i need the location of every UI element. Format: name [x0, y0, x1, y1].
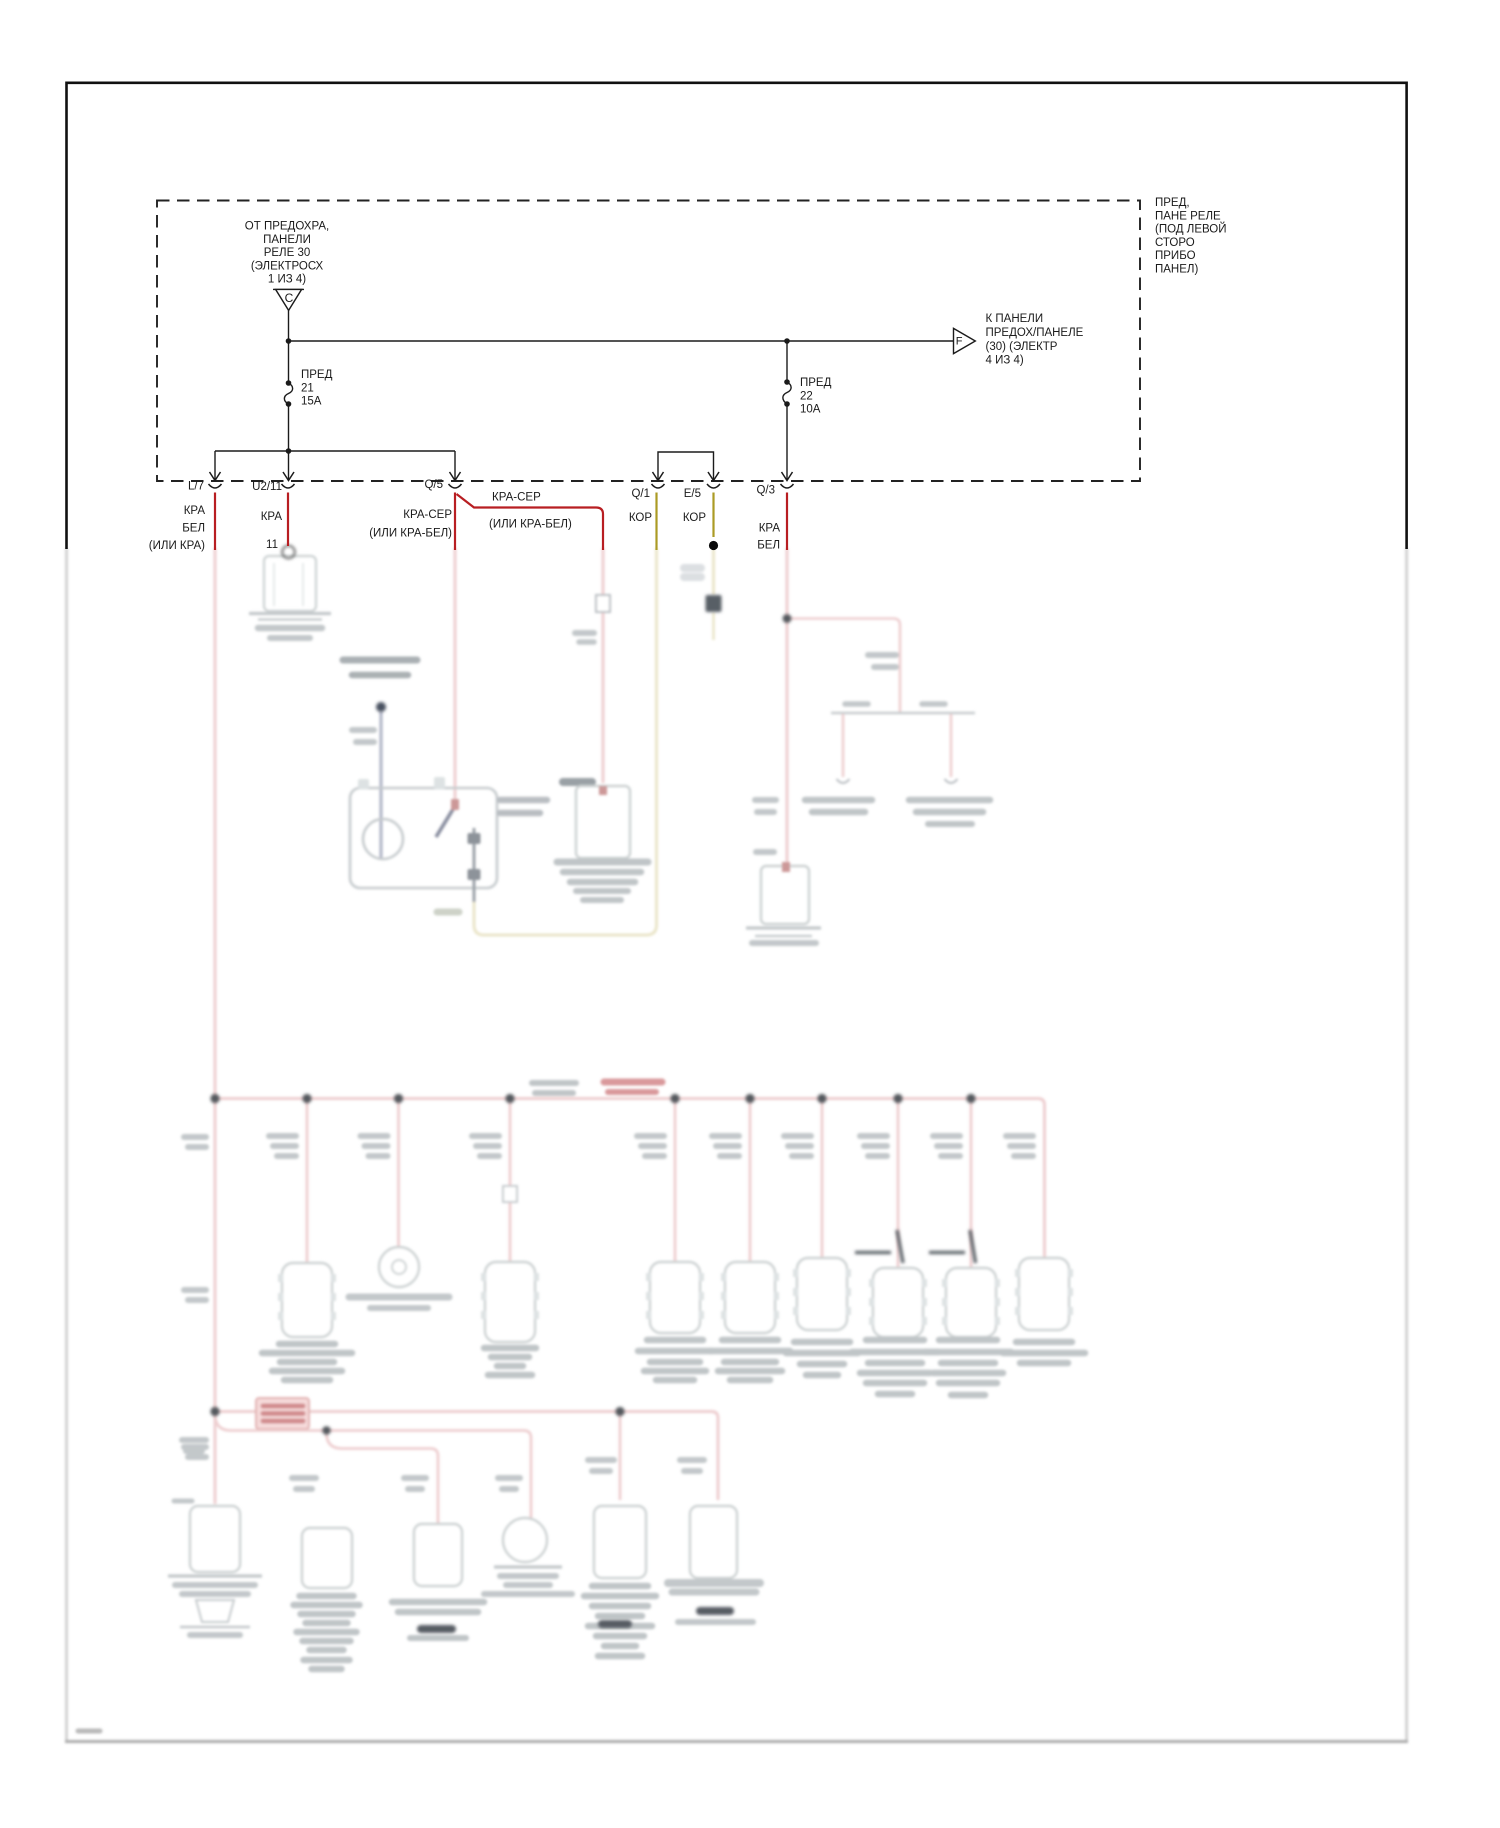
svg-text:(ИЛИ КРА-БЕЛ): (ИЛИ КРА-БЕЛ)	[489, 519, 572, 531]
svg-text:ПАНЕ РЕЛЕ: ПАНЕ РЕЛЕ	[1155, 210, 1221, 222]
svg-text:E/5: E/5	[684, 488, 701, 500]
svg-text:11: 11	[266, 539, 278, 551]
svg-text:(ЭЛЕКТРОСХ: (ЭЛЕКТРОСХ	[251, 260, 324, 272]
svg-text:КОР: КОР	[629, 512, 653, 524]
svg-text:ОТ ПРЕДОХРА,: ОТ ПРЕДОХРА,	[245, 221, 329, 233]
svg-text:15А: 15А	[301, 396, 322, 408]
svg-text:F: F	[956, 335, 963, 347]
svg-text:КРА: КРА	[261, 511, 283, 523]
svg-text:4 ИЗ 4): 4 ИЗ 4)	[986, 355, 1024, 367]
svg-text:(ИЛИ КРА): (ИЛИ КРА)	[149, 540, 205, 552]
svg-text:Q/3: Q/3	[756, 485, 775, 497]
svg-text:21: 21	[301, 382, 314, 394]
svg-text:(ИЛИ КРА-БЕЛ): (ИЛИ КРА-БЕЛ)	[369, 528, 452, 540]
svg-text:1 ИЗ 4): 1 ИЗ 4)	[268, 274, 306, 286]
svg-text:КРА: КРА	[184, 505, 206, 517]
svg-text:U2/11: U2/11	[252, 481, 282, 493]
svg-text:(ПОД ЛЕВОЙ: (ПОД ЛЕВОЙ	[1155, 223, 1227, 236]
svg-text:ПАНЕЛ): ПАНЕЛ)	[1155, 264, 1198, 276]
svg-text:БЕЛ: БЕЛ	[182, 523, 205, 535]
svg-text:22: 22	[800, 390, 813, 402]
svg-text:C: C	[285, 291, 294, 305]
svg-text:ПРЕД,: ПРЕД,	[1155, 197, 1190, 209]
svg-text:К ПАНЕЛИ: К ПАНЕЛИ	[986, 313, 1044, 325]
svg-text:ПРЕДОХ/ПАНЕЛЕ: ПРЕДОХ/ПАНЕЛЕ	[986, 327, 1084, 339]
svg-text:РЕЛЕ 30: РЕЛЕ 30	[264, 247, 311, 259]
svg-text:КРА-СЕР: КРА-СЕР	[492, 492, 541, 504]
svg-text:ПРИБО: ПРИБО	[1155, 250, 1196, 262]
svg-text:БЕЛ: БЕЛ	[757, 540, 780, 552]
svg-text:10А: 10А	[800, 404, 821, 416]
svg-text:КОР: КОР	[683, 512, 707, 524]
svg-text:Q/5: Q/5	[424, 479, 443, 491]
svg-text:(30) (ЭЛЕКТР: (30) (ЭЛЕКТР	[986, 341, 1058, 353]
svg-text:ПРЕД: ПРЕД	[301, 369, 333, 381]
svg-text:Q/1: Q/1	[631, 488, 650, 500]
svg-text:ПРЕД: ПРЕД	[800, 377, 832, 389]
svg-text:СТОРО: СТОРО	[1155, 237, 1195, 249]
svg-text:КРА: КРА	[759, 523, 781, 535]
svg-text:КРА-СЕР: КРА-СЕР	[403, 509, 452, 521]
svg-text:ПАНЕЛИ: ПАНЕЛИ	[263, 234, 311, 246]
svg-text:L/7: L/7	[188, 481, 204, 493]
